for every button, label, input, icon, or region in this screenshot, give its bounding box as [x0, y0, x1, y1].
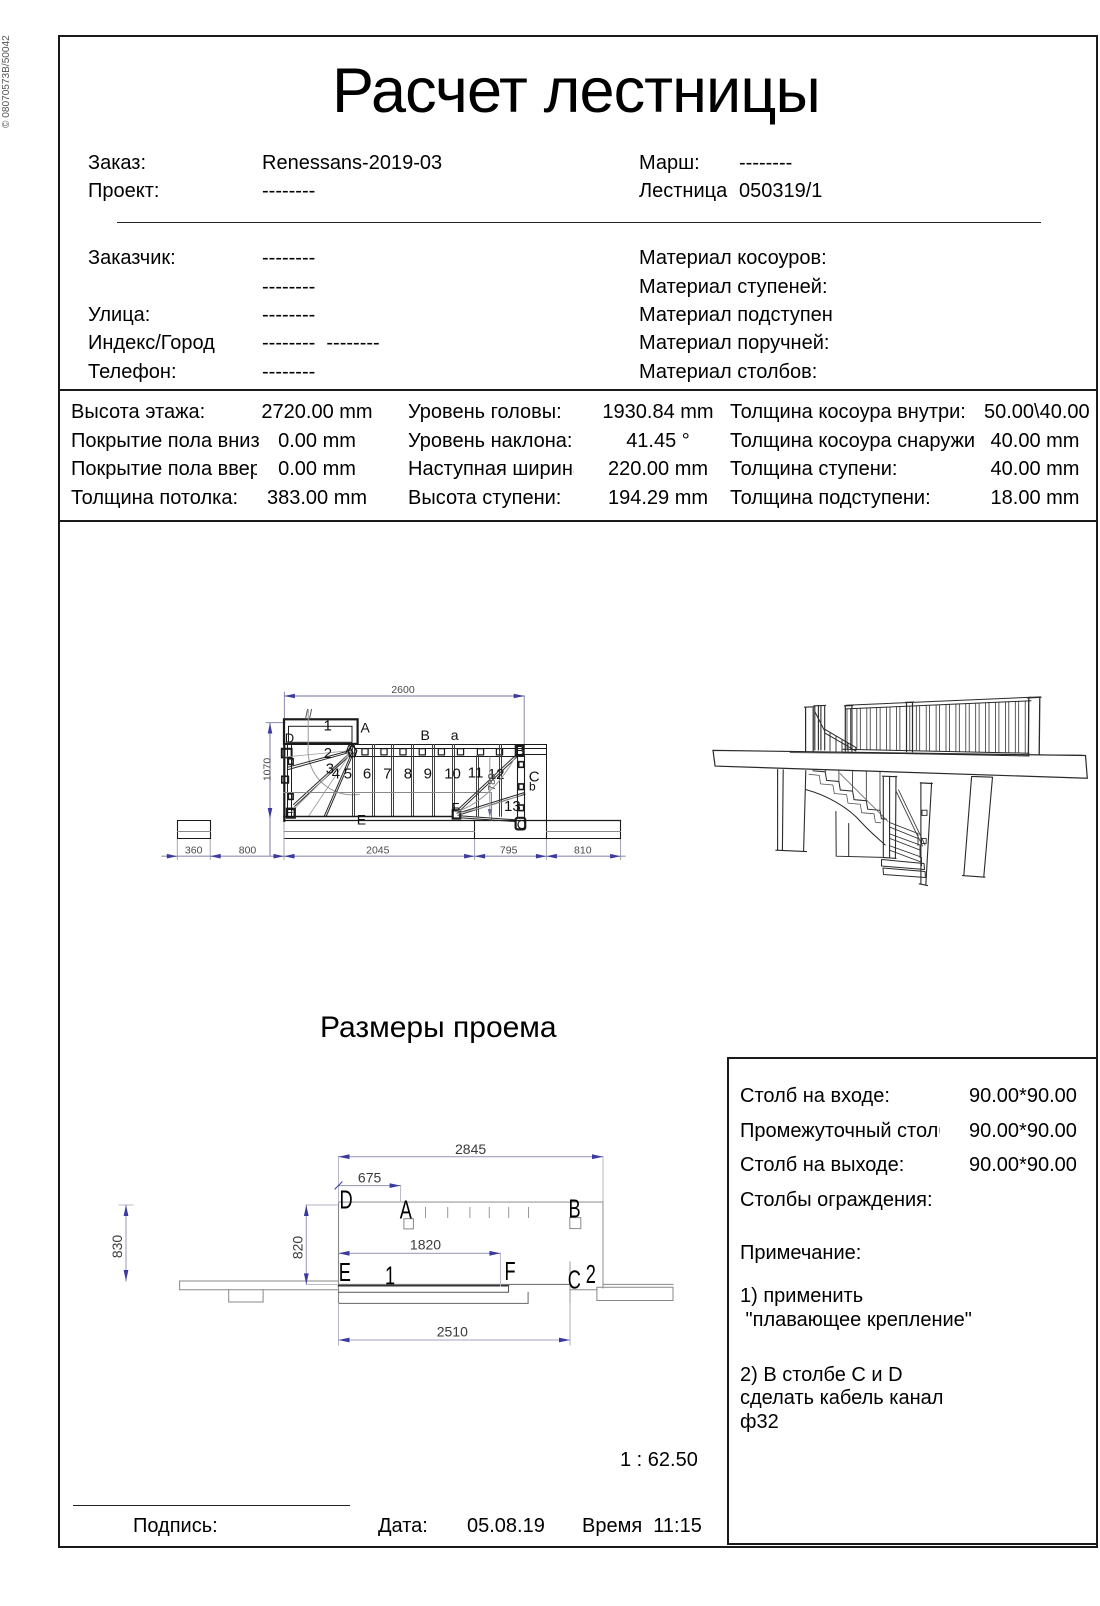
svg-text:1820: 1820: [410, 1236, 441, 1252]
svg-text:4: 4: [332, 766, 340, 783]
svg-text:675: 675: [358, 1170, 382, 1186]
svg-text:C: C: [517, 817, 526, 832]
svg-text:A: A: [345, 742, 353, 756]
svg-text:830: 830: [109, 1235, 125, 1259]
svg-text:1: 1: [385, 1261, 395, 1290]
svg-text:780: 780: [486, 773, 498, 791]
svg-text:8: 8: [404, 766, 412, 783]
svg-text:360: 360: [185, 844, 203, 856]
svg-text:820: 820: [289, 1236, 305, 1260]
svg-text:1: 1: [324, 718, 332, 735]
svg-text:2045: 2045: [366, 844, 390, 856]
svg-text:2510: 2510: [437, 1324, 468, 1340]
svg-text:B: B: [569, 1194, 581, 1223]
svg-text:6: 6: [363, 766, 371, 783]
svg-text:b: b: [529, 780, 536, 794]
svg-text:2600: 2600: [391, 684, 415, 696]
svg-text:2: 2: [586, 1260, 596, 1289]
svg-text:10: 10: [444, 766, 461, 783]
svg-text:7: 7: [383, 766, 391, 783]
svg-text:5: 5: [344, 766, 352, 783]
svg-text:E: E: [339, 1258, 351, 1287]
svg-text:2845: 2845: [455, 1141, 486, 1157]
svg-text:11: 11: [468, 765, 484, 782]
svg-text:B: B: [516, 743, 525, 758]
svg-text:a: a: [451, 727, 459, 743]
svg-text:810: 810: [574, 844, 592, 856]
svg-text:A: A: [361, 720, 371, 736]
svg-text:9: 9: [424, 766, 432, 783]
svg-text:1070: 1070: [262, 758, 274, 782]
svg-text:800: 800: [239, 844, 257, 856]
svg-text:A: A: [400, 1195, 412, 1224]
svg-text:C: C: [568, 1265, 581, 1294]
svg-text:E: E: [286, 806, 294, 820]
svg-text:D: D: [285, 731, 294, 746]
svg-text:2: 2: [324, 745, 332, 762]
svg-text:D: D: [340, 1185, 353, 1214]
svg-text:F: F: [505, 1257, 516, 1286]
svg-text:795: 795: [500, 844, 518, 856]
svg-text:B: B: [421, 727, 430, 743]
svg-text:E: E: [357, 812, 366, 828]
